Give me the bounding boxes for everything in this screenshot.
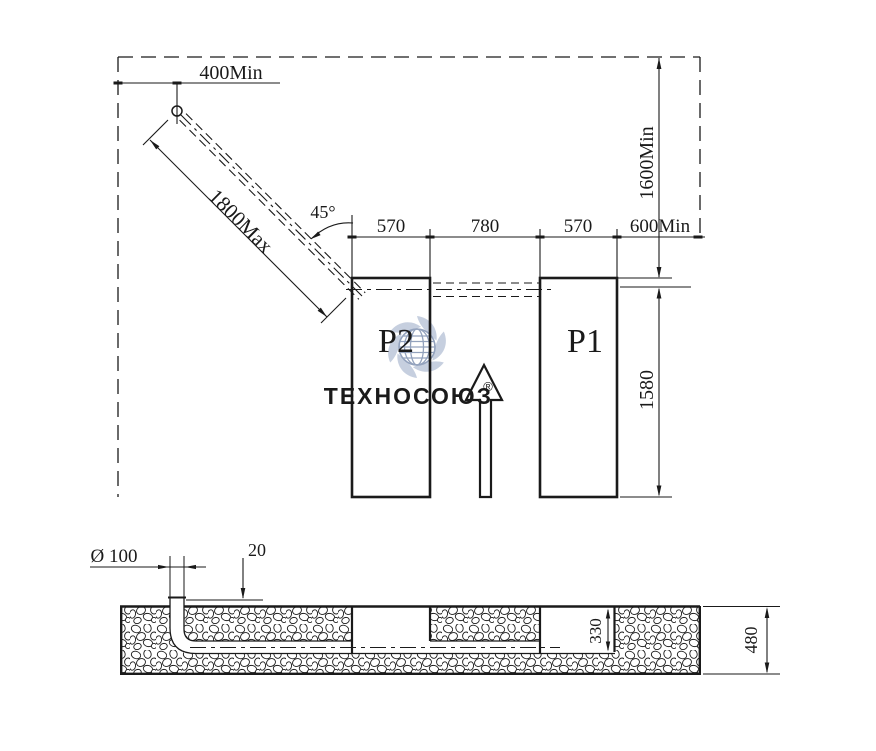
post-p1-outline [540,278,617,497]
technical-drawing: ТЕХНО СОЮЗ ® [0,0,876,751]
dim-570-left-label: 570 [377,216,406,237]
swing-arm-closed [346,283,552,297]
registered-trademark-icon: ® [483,379,493,394]
dim-20-label: 20 [248,540,266,560]
dim-330-label: 330 [586,618,605,644]
post-p2-label: P2 [378,323,414,360]
arm-pivot [172,83,182,124]
dim-pipe-protrusion [186,558,263,600]
watermark-brand-left: ТЕХНО [324,383,413,409]
foundation-section [90,556,780,675]
ext-cap-pivot-end [143,120,168,145]
dim-400min-label: 400Min [199,62,262,84]
dim-480-label: 480 [741,627,761,654]
swing-arm-open [180,114,366,300]
angle-45-label: 45° [310,202,335,222]
dim-600min-label: 600Min [630,216,691,237]
angle-45 [311,223,353,239]
dim-570-right-label: 570 [564,216,593,237]
dim-1600min-label: 1600Min [636,126,658,199]
watermark-brand-right: СОЮЗ [413,383,493,409]
dim-diameter-label: Ø 100 [91,546,138,567]
drawing-canvas: ТЕХНО СОЮЗ ® [0,0,876,751]
dim-1580-label: 1580 [636,370,658,410]
post-p1-label: P1 [567,323,603,360]
angle-arc [311,223,353,239]
plan-view [114,57,706,497]
ext-cap-arm-end [321,298,346,323]
dim-780-label: 780 [471,216,500,237]
